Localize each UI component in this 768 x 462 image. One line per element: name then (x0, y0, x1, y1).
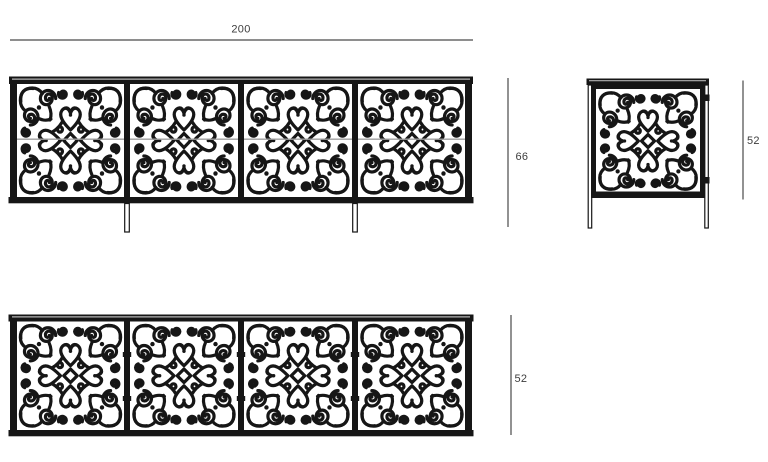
ornament-panel (20, 325, 120, 426)
right-stile (465, 84, 472, 197)
leg (353, 204, 358, 233)
door-divider (352, 322, 358, 431)
ornament-panel (134, 325, 234, 426)
hinge-knob (704, 177, 710, 184)
width-dimension-label: 200 (231, 24, 250, 36)
left-stile (10, 84, 17, 197)
ornament-panel (134, 88, 234, 193)
side-height-dimension-label: 52 (747, 135, 760, 147)
lower-height-dimension-label: 52 (515, 373, 528, 385)
right-stile (465, 322, 472, 431)
hinge (351, 396, 359, 401)
lower-view (9, 315, 474, 437)
top-slab-highlight (12, 316, 470, 317)
side-right-leg (705, 85, 709, 228)
ornament-panel (20, 88, 120, 193)
front-height-dimension: 66 (508, 78, 528, 227)
hinge (237, 396, 245, 401)
ornament-panel (362, 88, 462, 193)
hinge (237, 352, 245, 357)
bottom-slab (9, 430, 474, 436)
dimension-drawing: 200 66 52 (0, 0, 768, 462)
door-divider (124, 322, 130, 431)
side-view (587, 79, 710, 229)
side-bottom-rail (592, 192, 705, 198)
hinge (351, 352, 359, 357)
side-top-slab-highlight (589, 80, 706, 81)
hinge-knob (704, 95, 710, 102)
hinge (123, 352, 131, 357)
leg (125, 204, 130, 233)
ornament-panel (248, 88, 348, 193)
front-view (9, 77, 474, 233)
side-top-slab (587, 79, 710, 86)
ornament-panel (248, 325, 348, 426)
technical-drawing-page: 200 66 52 (0, 0, 768, 462)
width-dimension: 200 (10, 24, 473, 41)
bottom-slab (9, 197, 474, 203)
ornament-panel (362, 325, 462, 426)
side-height-dimension: 52 (743, 81, 760, 200)
top-slab-highlight (12, 79, 470, 80)
top-slab (9, 315, 474, 322)
door-divider (238, 322, 244, 431)
left-stile (10, 322, 17, 431)
front-height-dimension-label: 66 (516, 151, 529, 163)
lower-height-dimension: 52 (511, 315, 527, 435)
door-divider (124, 84, 130, 197)
top-slab (9, 77, 473, 85)
door-divider (238, 84, 244, 197)
hinge (123, 396, 131, 401)
door-divider (352, 84, 358, 197)
